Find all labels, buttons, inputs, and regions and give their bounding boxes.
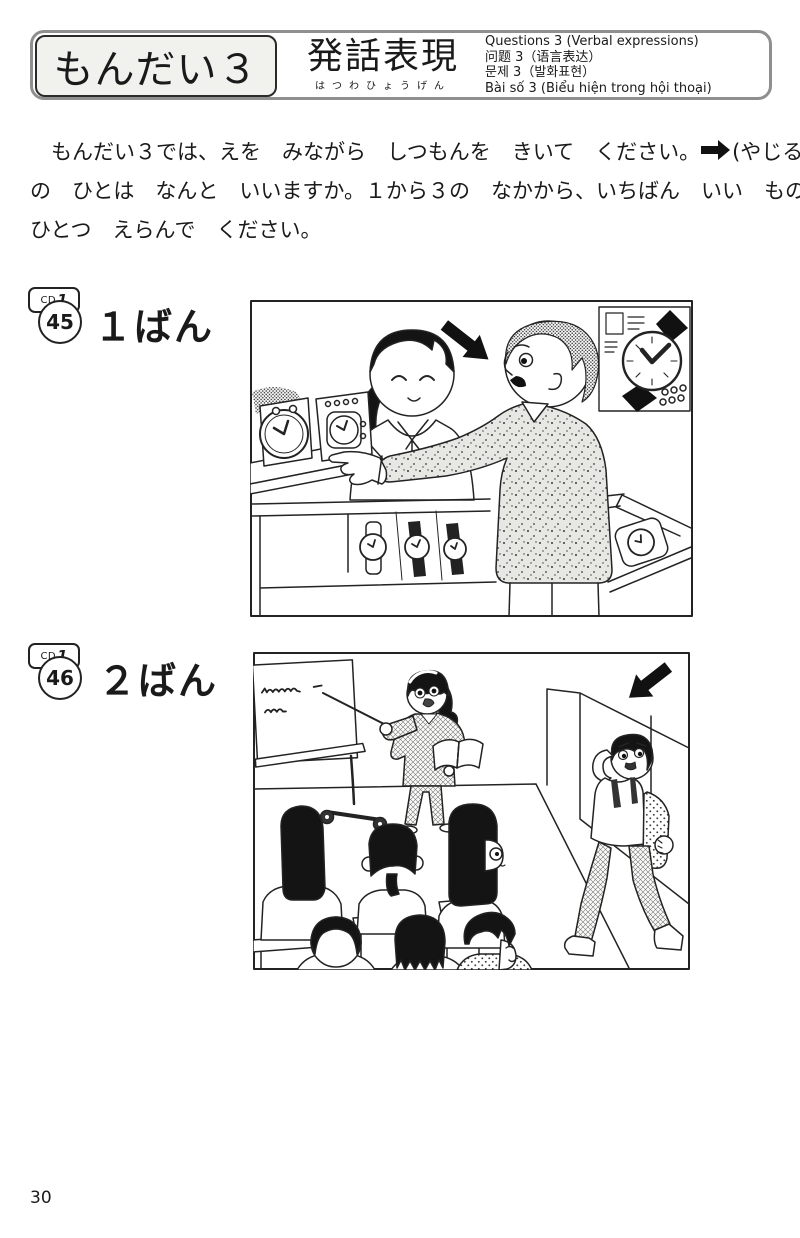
track-number-2: 46 — [38, 656, 82, 700]
problem-subtitle: 発話表現 — [307, 38, 459, 76]
illustration-2-classroom — [253, 652, 690, 970]
question-2-label: ２ばん — [98, 650, 218, 705]
section-header: もんだい３ 発話表現 はつわひょうげん Questions 3 (Verbal … — [30, 30, 772, 100]
track-number-1: 45 — [38, 300, 82, 344]
translation-english: Questions 3 (Verbal expressions) — [485, 34, 773, 50]
cd-track-badge-2: CD1 46 — [28, 643, 108, 705]
right-arrow-icon — [701, 139, 731, 161]
instruction-line3: ひとつ えらんで ください。 — [30, 211, 786, 250]
problem-subtitle-block: 発話表現 はつわひょうげん — [285, 33, 481, 97]
translation-vietnamese: Bài số 3 (Biểu hiện trong hội thoại) — [485, 81, 773, 97]
page-number: 30 — [30, 1188, 52, 1208]
translation-korean: 문제 3（발화표현） — [485, 65, 773, 81]
textbook-page: もんだい３ 発話表現 はつわひょうげん Questions 3 (Verbal … — [0, 0, 800, 1238]
subtitle-furigana: はつわひょうげん — [315, 77, 451, 92]
instruction-arrow-note: (やじるし) — [732, 140, 800, 164]
question-1-label: １ばん — [94, 296, 214, 351]
instructions-paragraph: もんだい３では、えを みながら しつもんを きいて ください。(やじるし) の … — [30, 133, 786, 250]
problem-title: もんだい３ — [35, 35, 277, 97]
instruction-line1: もんだい３では、えを みながら しつもんを きいて ください。 — [30, 140, 700, 164]
translations-block: Questions 3 (Verbal expressions) 问题 3（语言… — [485, 34, 773, 96]
translation-chinese: 问题 3（语言表达） — [485, 50, 773, 66]
illustration-1-watch-shop — [250, 300, 693, 617]
instruction-line2: の ひとは なんと いいますか。１から３の なかから、いちばん いい ものを — [30, 172, 786, 211]
